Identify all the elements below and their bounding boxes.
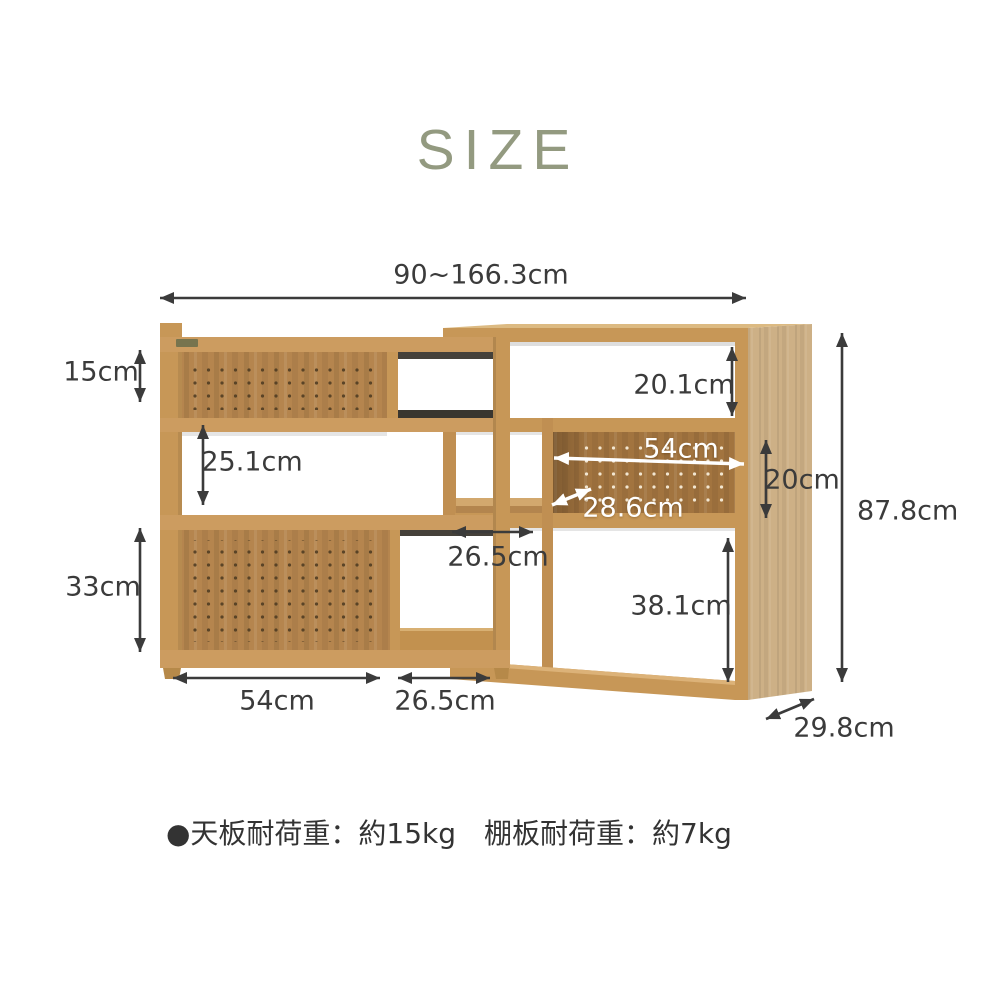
dim-upper-right-opening-height: 20.1cm (633, 372, 734, 399)
dim-top-width: 90~166.3cm (393, 262, 568, 289)
left-top-pegboard-panel (182, 352, 387, 418)
dim-inner-shelf-depth: 28.6cm (582, 495, 683, 522)
dim-total-depth: 29.8cm (793, 715, 894, 742)
dim-upper-left-shelf-height: 15cm (63, 359, 139, 386)
dim-middle-left-opening-height: 25.1cm (201, 449, 302, 476)
brand-plaque (176, 339, 198, 347)
dim-inner-shelf-height: 20cm (764, 467, 840, 494)
page-title: SIZE (417, 117, 580, 183)
dim-inner-shelf-width: 54cm (643, 436, 719, 463)
size-diagram-page: SIZE (0, 0, 1000, 1000)
dim-center-opening-width: 26.5cm (447, 544, 548, 571)
load-capacity-note: ●天板耐荷重：約15kg 棚板耐荷重：約7kg (166, 812, 732, 852)
dim-total-height: 87.8cm (857, 498, 958, 525)
dim-lower-right-opening-height: 38.1cm (630, 593, 731, 620)
dim-bottom-left-width: 54cm (239, 688, 315, 715)
dim-lower-left-shelf-height: 33cm (65, 574, 141, 601)
dim-bottom-center-width: 26.5cm (394, 688, 495, 715)
left-bottom-pegboard-panel (182, 530, 390, 650)
